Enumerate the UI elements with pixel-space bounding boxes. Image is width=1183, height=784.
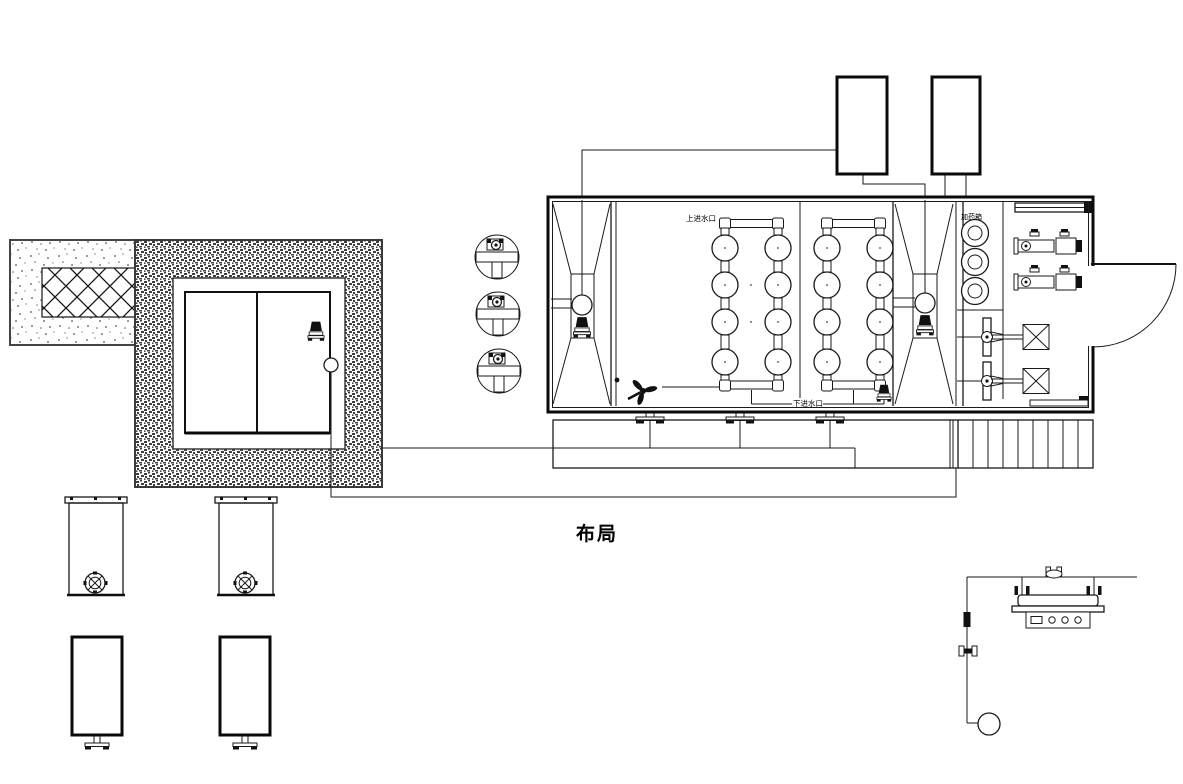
closed-tank: [72, 637, 122, 750]
aerator-icons: [475, 235, 521, 393]
open-tank: [65, 497, 127, 595]
inlet-bottom-label: 下进水口: [793, 398, 823, 408]
valve-icon: [1046, 567, 1062, 578]
feed-tank-left: [837, 77, 887, 174]
door: [1087, 264, 1176, 347]
aerator-icon: [477, 349, 521, 393]
flange-icon: [84, 572, 108, 594]
storage-tanks: [65, 497, 277, 750]
open-tank: [215, 497, 277, 595]
aerator-icon: [475, 235, 519, 279]
equalization-pool: [135, 240, 382, 487]
aerator-icon: [476, 292, 520, 336]
control-box: [1026, 612, 1090, 628]
pool-outlet-circle: [324, 358, 338, 372]
feed-tanks: [837, 77, 980, 174]
base-grating: [950, 420, 1078, 468]
flange-icon: [234, 572, 258, 594]
treatment-skid: 上进水口 下进水口 加药箱: [548, 196, 1176, 413]
dosing-tanks: 加药箱: [961, 212, 989, 305]
pipe-tank1-feed: [582, 150, 837, 200]
dosing-vessel: [1018, 595, 1098, 606]
dosing-skid: [959, 567, 1137, 735]
gravel-hatch: [42, 268, 135, 317]
transfer-pump-circle: [978, 713, 1000, 735]
page-title: 布局: [576, 522, 618, 545]
closed-tank: [220, 637, 270, 750]
site-plan-svg: 上进水口 下进水口 加药箱: [0, 0, 1183, 784]
inlet-top-label: 上进水口: [686, 213, 716, 223]
feed-tank-right: [932, 77, 980, 174]
pipe-fitting-icon: [959, 646, 977, 656]
skid-base: [553, 413, 1093, 468]
inline-filter-icon: [964, 612, 971, 627]
concrete-pad: [10, 240, 135, 345]
